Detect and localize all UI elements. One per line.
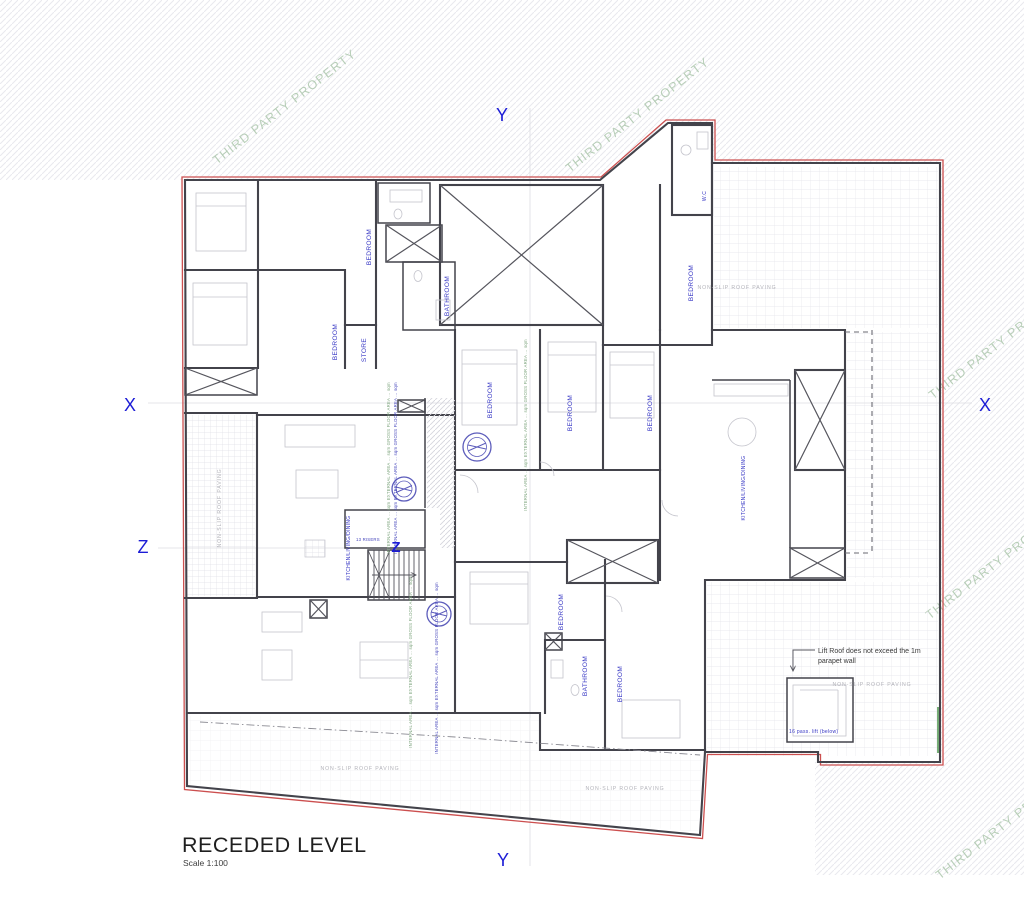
- paving-label: NON-SLIP ROOF PAVING: [697, 285, 776, 291]
- paving-label: NON-SLIP ROOF PAVING: [585, 786, 664, 792]
- perit-stamp-icon: [427, 602, 451, 626]
- lift-roof-note-line1: Lift Roof does not exceed the 1m: [818, 648, 921, 655]
- furniture: [193, 132, 788, 738]
- section-marker-z-left: Z: [138, 537, 149, 557]
- room-label-wc: W.C: [702, 191, 708, 201]
- room-label-kitchen-living-dining: KITCHEN/LIVING/DINING: [741, 456, 747, 521]
- area-note: INTERNAL AREA … sqm EXTERNAL AREA … sqm …: [408, 576, 413, 748]
- stair-riser-note: 13 RISERS: [356, 537, 380, 542]
- section-marker-x-right: X: [979, 395, 991, 415]
- bathroom-top-walls: [378, 183, 430, 223]
- drawing-scale: Scale 1:100: [183, 858, 228, 868]
- section-marker-z-mid: Z: [391, 539, 400, 556]
- room-label-store: STORE: [361, 338, 368, 363]
- paving-label: NON-SLIP ROOF PAVING: [217, 468, 223, 547]
- corridor-hatch: [425, 398, 455, 548]
- architectural-drawing-sheet: THIRD PARTY PROPERTY THIRD PARTY PROPERT…: [0, 0, 1024, 919]
- room-label-bedroom: BEDROOM: [487, 382, 494, 418]
- drawing-title: RECEDED LEVEL: [182, 833, 367, 857]
- area-note: INTERNAL AREA … sqm EXTERNAL AREA … sqm …: [523, 339, 528, 511]
- area-notes: INTERNAL AREA … sqm EXTERNAL AREA … sqm …: [386, 339, 528, 754]
- area-note: INTERNAL AREA … sqm EXTERNAL AREA … sqm …: [434, 582, 439, 754]
- section-marker-y-top: Y: [496, 105, 508, 125]
- room-label-bedroom: BEDROOM: [617, 666, 624, 702]
- floor-plan: THIRD PARTY PROPERTY THIRD PARTY PROPERT…: [0, 0, 1024, 919]
- staircase: 13 RISERS: [345, 510, 425, 600]
- room-label-bathroom: BATHROOM: [444, 276, 451, 316]
- paving-label: NON-SLIP ROOF PAVING: [832, 682, 911, 688]
- room-label-bedroom: BEDROOM: [558, 594, 565, 630]
- perit-stamp-icon: [463, 433, 491, 461]
- lift-roof-note-line2: parapet wall: [818, 658, 856, 665]
- room-label-kitchen-living-dining: KITCHEN/LIVING/DINING: [346, 516, 352, 581]
- paving-label: NON-SLIP ROOF PAVING: [320, 766, 399, 772]
- title-block: RECEDED LEVEL Scale 1:100: [182, 833, 367, 868]
- section-marker-x-left: X: [124, 395, 136, 415]
- room-label-bedroom: BEDROOM: [647, 395, 654, 431]
- room-label-bedroom: BEDROOM: [688, 265, 695, 301]
- section-marker-y-bottom: Y: [497, 850, 509, 870]
- kitchen-walls: [712, 380, 790, 548]
- room-label-bathroom: BATHROOM: [582, 656, 589, 696]
- area-note: INTERNAL AREA … sqm EXTERNAL AREA … sqm …: [386, 382, 391, 554]
- lift-below-label: 16 pass. lift (below): [789, 729, 838, 735]
- area-note: INTERNAL AREA … sqm EXTERNAL AREA … sqm …: [393, 382, 398, 554]
- room-label-bedroom: BEDROOM: [366, 229, 373, 265]
- room-label-bedroom: BEDROOM: [332, 324, 339, 360]
- room-label-bedroom: BEDROOM: [567, 395, 574, 431]
